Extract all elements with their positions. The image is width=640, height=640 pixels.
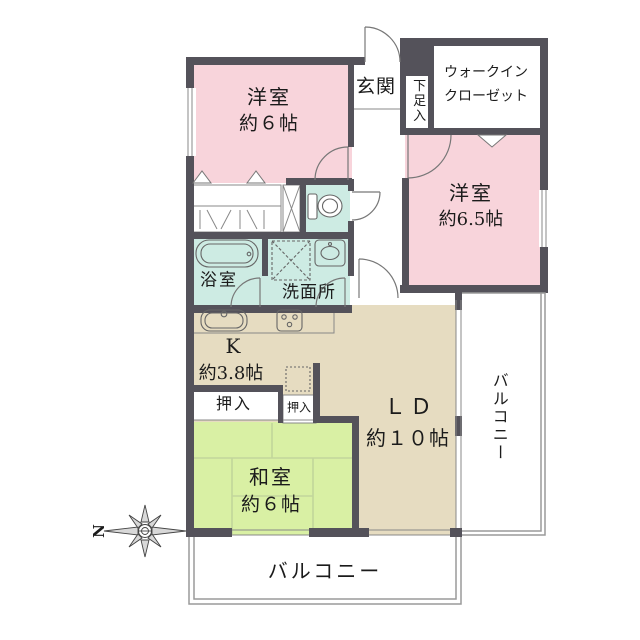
closet-large-label: 押入 [216, 395, 252, 413]
toilet-icon [308, 194, 342, 219]
toilet-door-arc [352, 192, 380, 220]
wall-k-ld-vertical [313, 363, 320, 423]
bathroom-label: 浴室 [200, 272, 238, 291]
kitchen-name-label: K [226, 335, 241, 357]
ld-name-label: ＬＤ [384, 396, 436, 420]
ld-size-label: 約１０帖 [366, 427, 450, 449]
wall-corridor-left-c [348, 221, 354, 276]
wall-bottom-a [186, 528, 232, 537]
ld-door-arc [359, 259, 398, 298]
wall-western2-bottom [400, 285, 548, 293]
western1-name-label: 洋室 [247, 86, 291, 108]
wall-wic-top [400, 38, 548, 46]
wall-bath-top [186, 232, 352, 239]
wall-western2-left [402, 178, 409, 292]
floor-plan: 洋室 約６帖 洋室 約6.5帖 玄関 下足入 ウォークイン クローゼット 浴室 … [0, 0, 640, 640]
kitchen-size-label: 約3.8帖 [199, 364, 264, 384]
wall-right-outer [540, 38, 548, 292]
entrance-label: 玄関 [356, 77, 396, 98]
western2-size-label: 約6.5帖 [439, 210, 504, 230]
wall-wic-bottom [400, 128, 548, 135]
wic-label-line2: クローゼット [444, 89, 528, 104]
wall-oshiire-right [278, 385, 283, 423]
wall-toilet-left [300, 178, 306, 235]
wall-bottom-stub [450, 528, 462, 537]
wall-bottom-b [309, 528, 369, 537]
wall-corridor-right [400, 62, 406, 135]
closet-hatch-marks [200, 210, 264, 229]
japanese-size-label: 約６帖 [241, 495, 301, 516]
wall-bath-wash-divider [262, 239, 268, 276]
wall-washitsu-right [352, 420, 359, 537]
balcony-right-label: バルコニー [490, 372, 508, 462]
western2-name-label: 洋室 [449, 182, 493, 204]
wall-corridor-left-a [348, 62, 354, 147]
wall-oshiire-top [186, 385, 283, 392]
wall-teal-bottom [186, 305, 352, 313]
wall-top [186, 57, 365, 65]
wall-wic-left [428, 45, 434, 135]
shoe-storage-label: 下足入 [410, 79, 424, 124]
wic-label-line1: ウォークイン [444, 65, 528, 80]
wall-toilet-top [286, 178, 352, 185]
compass-rose [104, 505, 186, 557]
japanese-name-label: 和室 [249, 466, 293, 488]
washroom-label: 洗面所 [282, 284, 336, 303]
closet-small-label: 押入 [287, 401, 311, 414]
entrance-door-arc [365, 27, 400, 62]
compass-north-label: N [91, 524, 108, 538]
balcony-bottom-label: バルコニー [268, 560, 383, 582]
western1-size-label: 約６帖 [239, 114, 299, 135]
floor-plan-drawing [0, 0, 640, 640]
closet-hatch-box [193, 185, 281, 232]
